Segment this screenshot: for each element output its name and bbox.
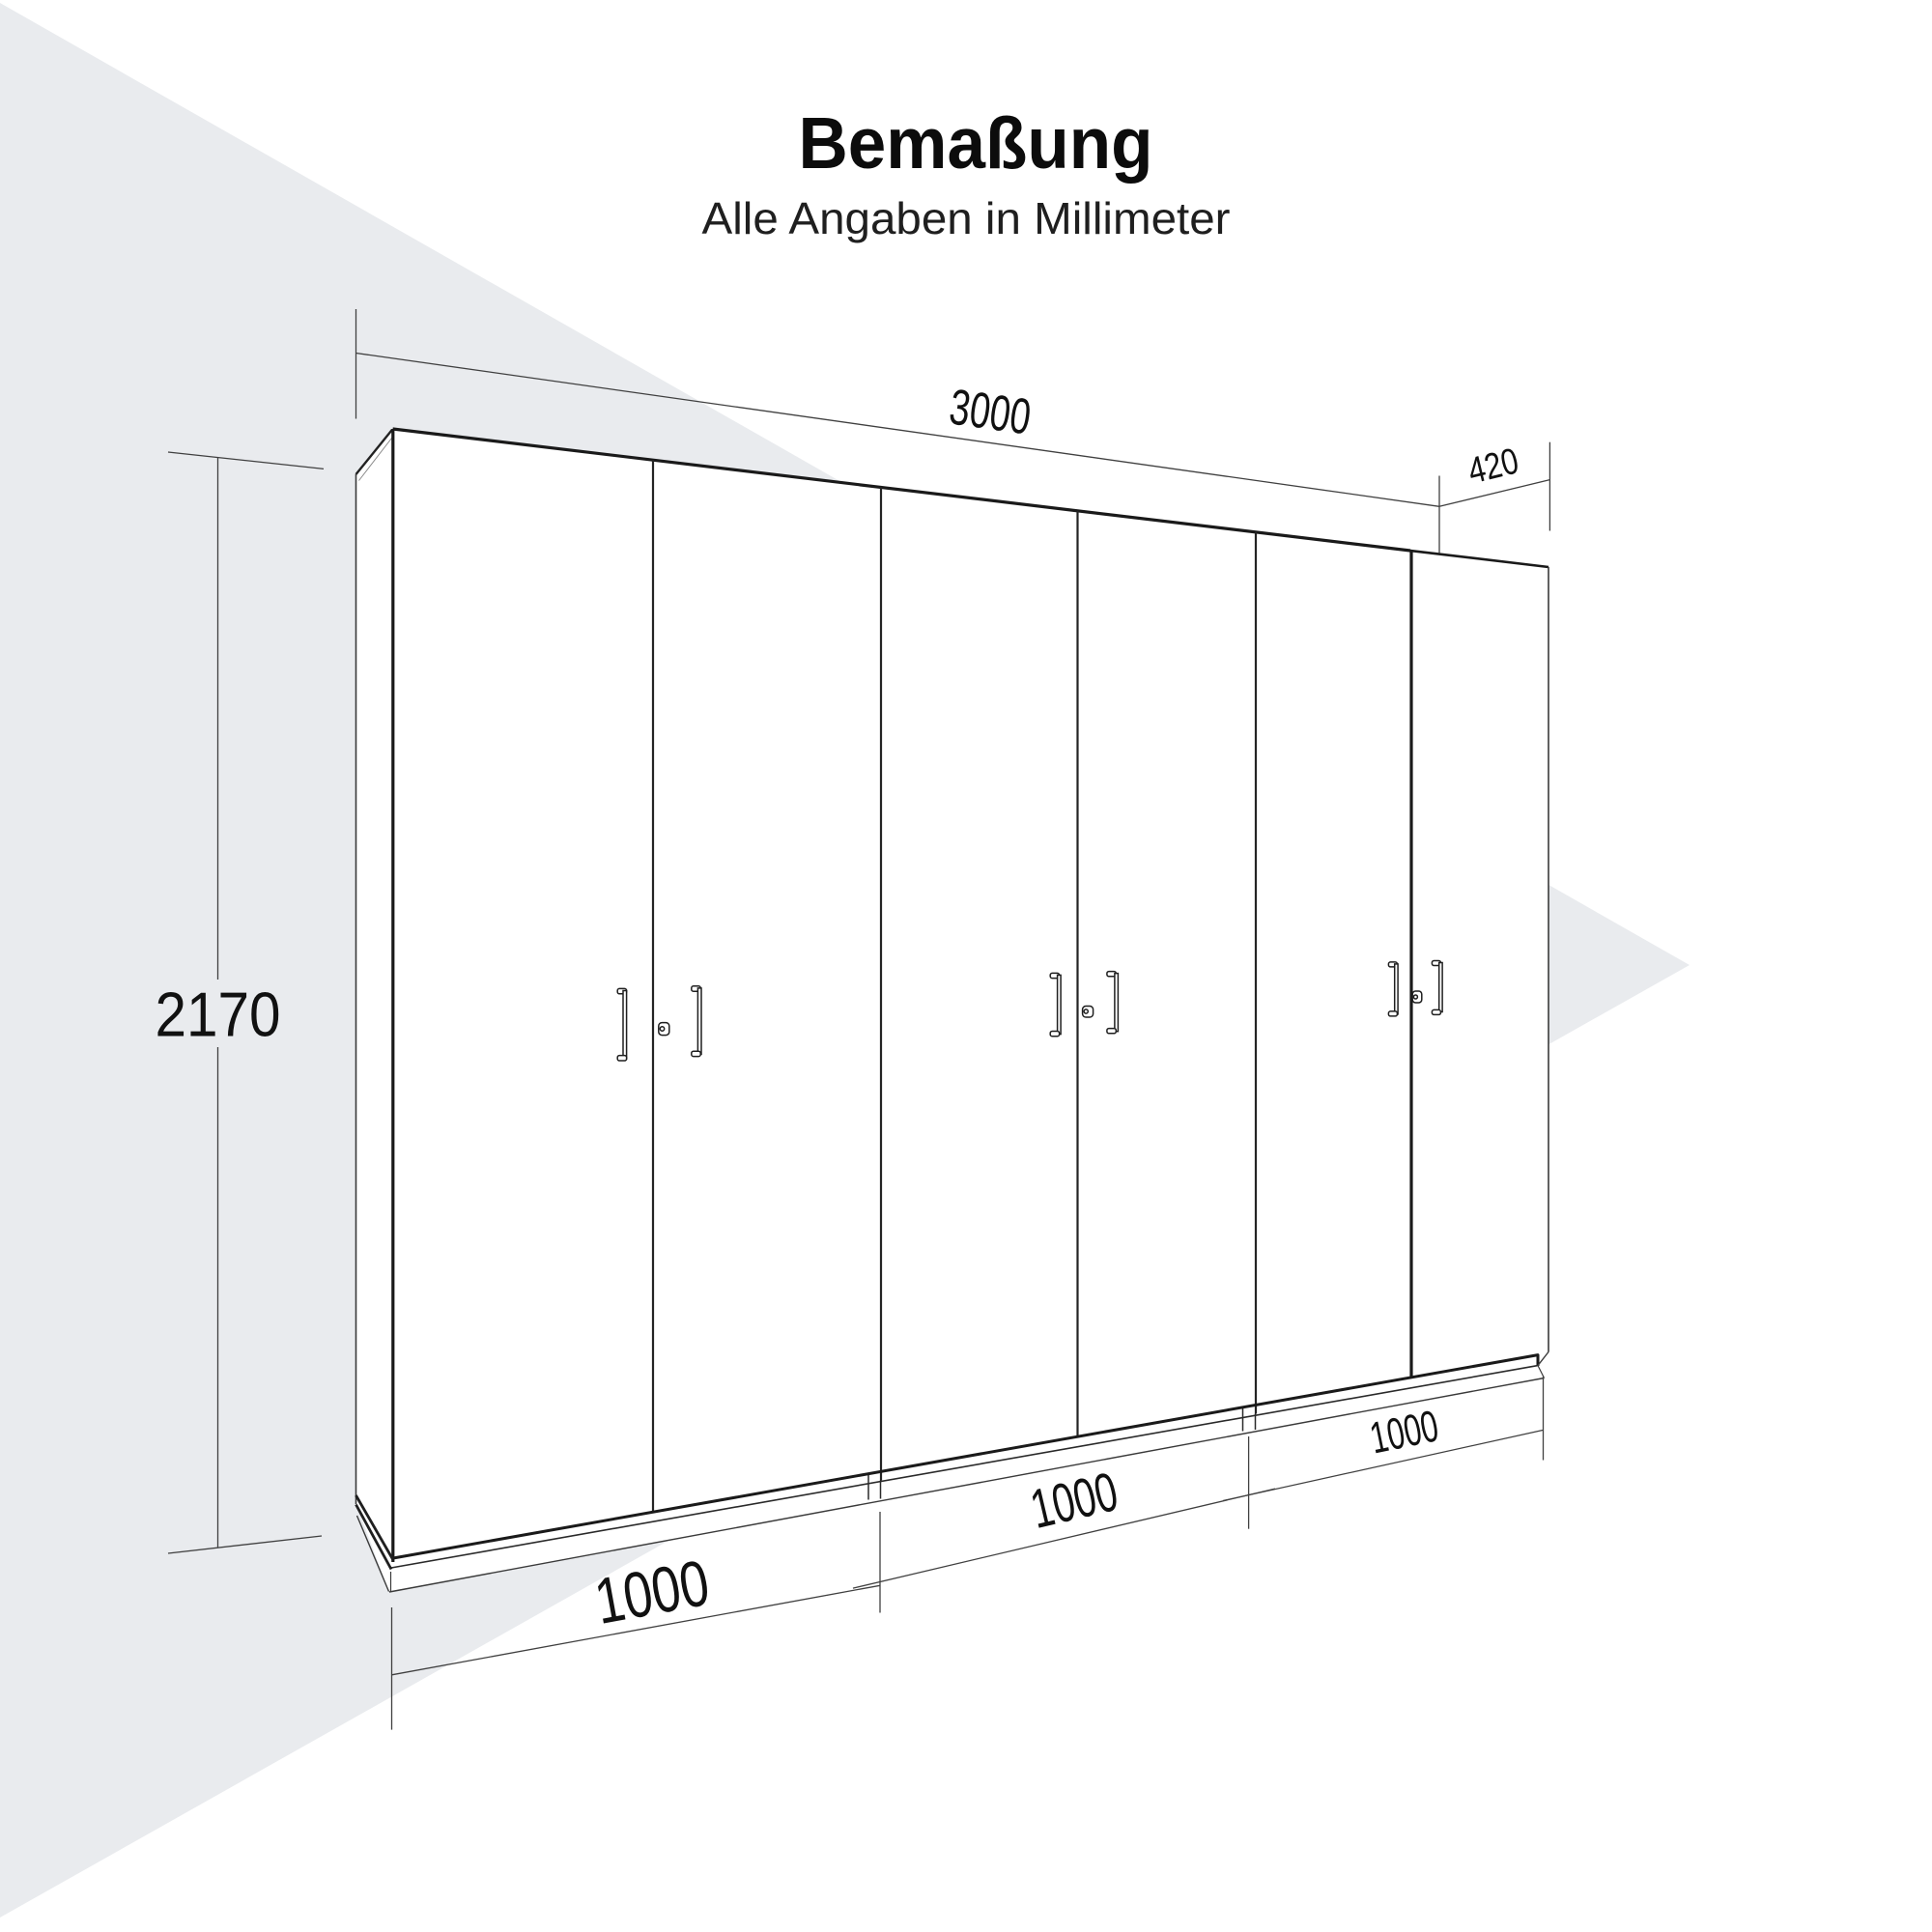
svg-text:Alle Angaben in Millimeter: Alle Angaben in Millimeter	[702, 193, 1231, 243]
svg-text:Bemaßung: Bemaßung	[799, 102, 1153, 184]
svg-text:2170: 2170	[156, 980, 281, 1050]
svg-text:3000: 3000	[946, 379, 1034, 445]
